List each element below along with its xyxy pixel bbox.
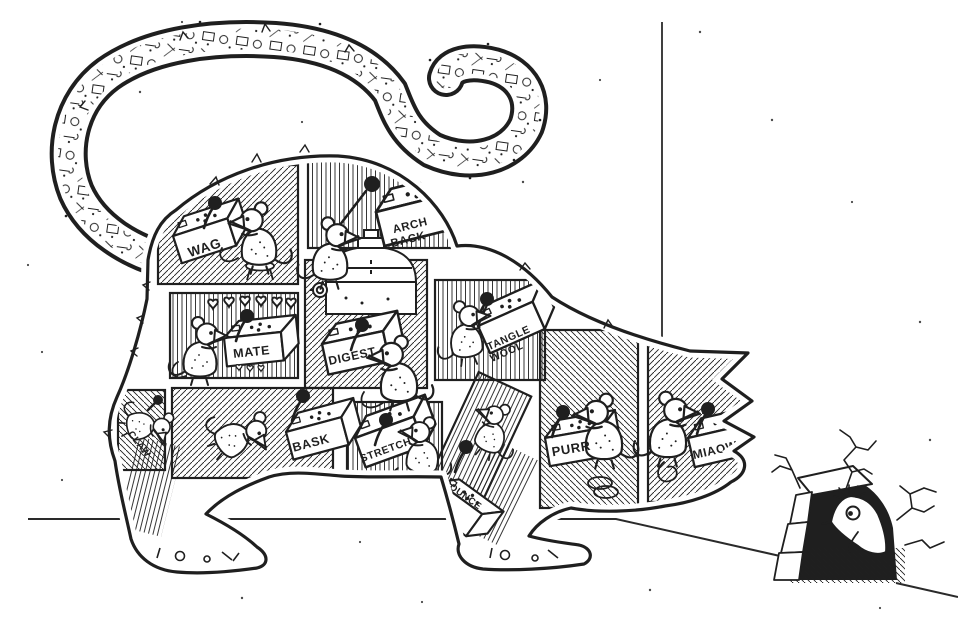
cartoon-illustration: WAG ARCH BACK MATE DIGEST TANGLE WOOL CL… — [0, 0, 958, 618]
hole-mound-hatching — [790, 548, 905, 583]
cat-machine-drawing: WAG ARCH BACK MATE DIGEST TANGLE WOOL CL… — [0, 0, 958, 618]
mouse-hole — [772, 430, 944, 583]
